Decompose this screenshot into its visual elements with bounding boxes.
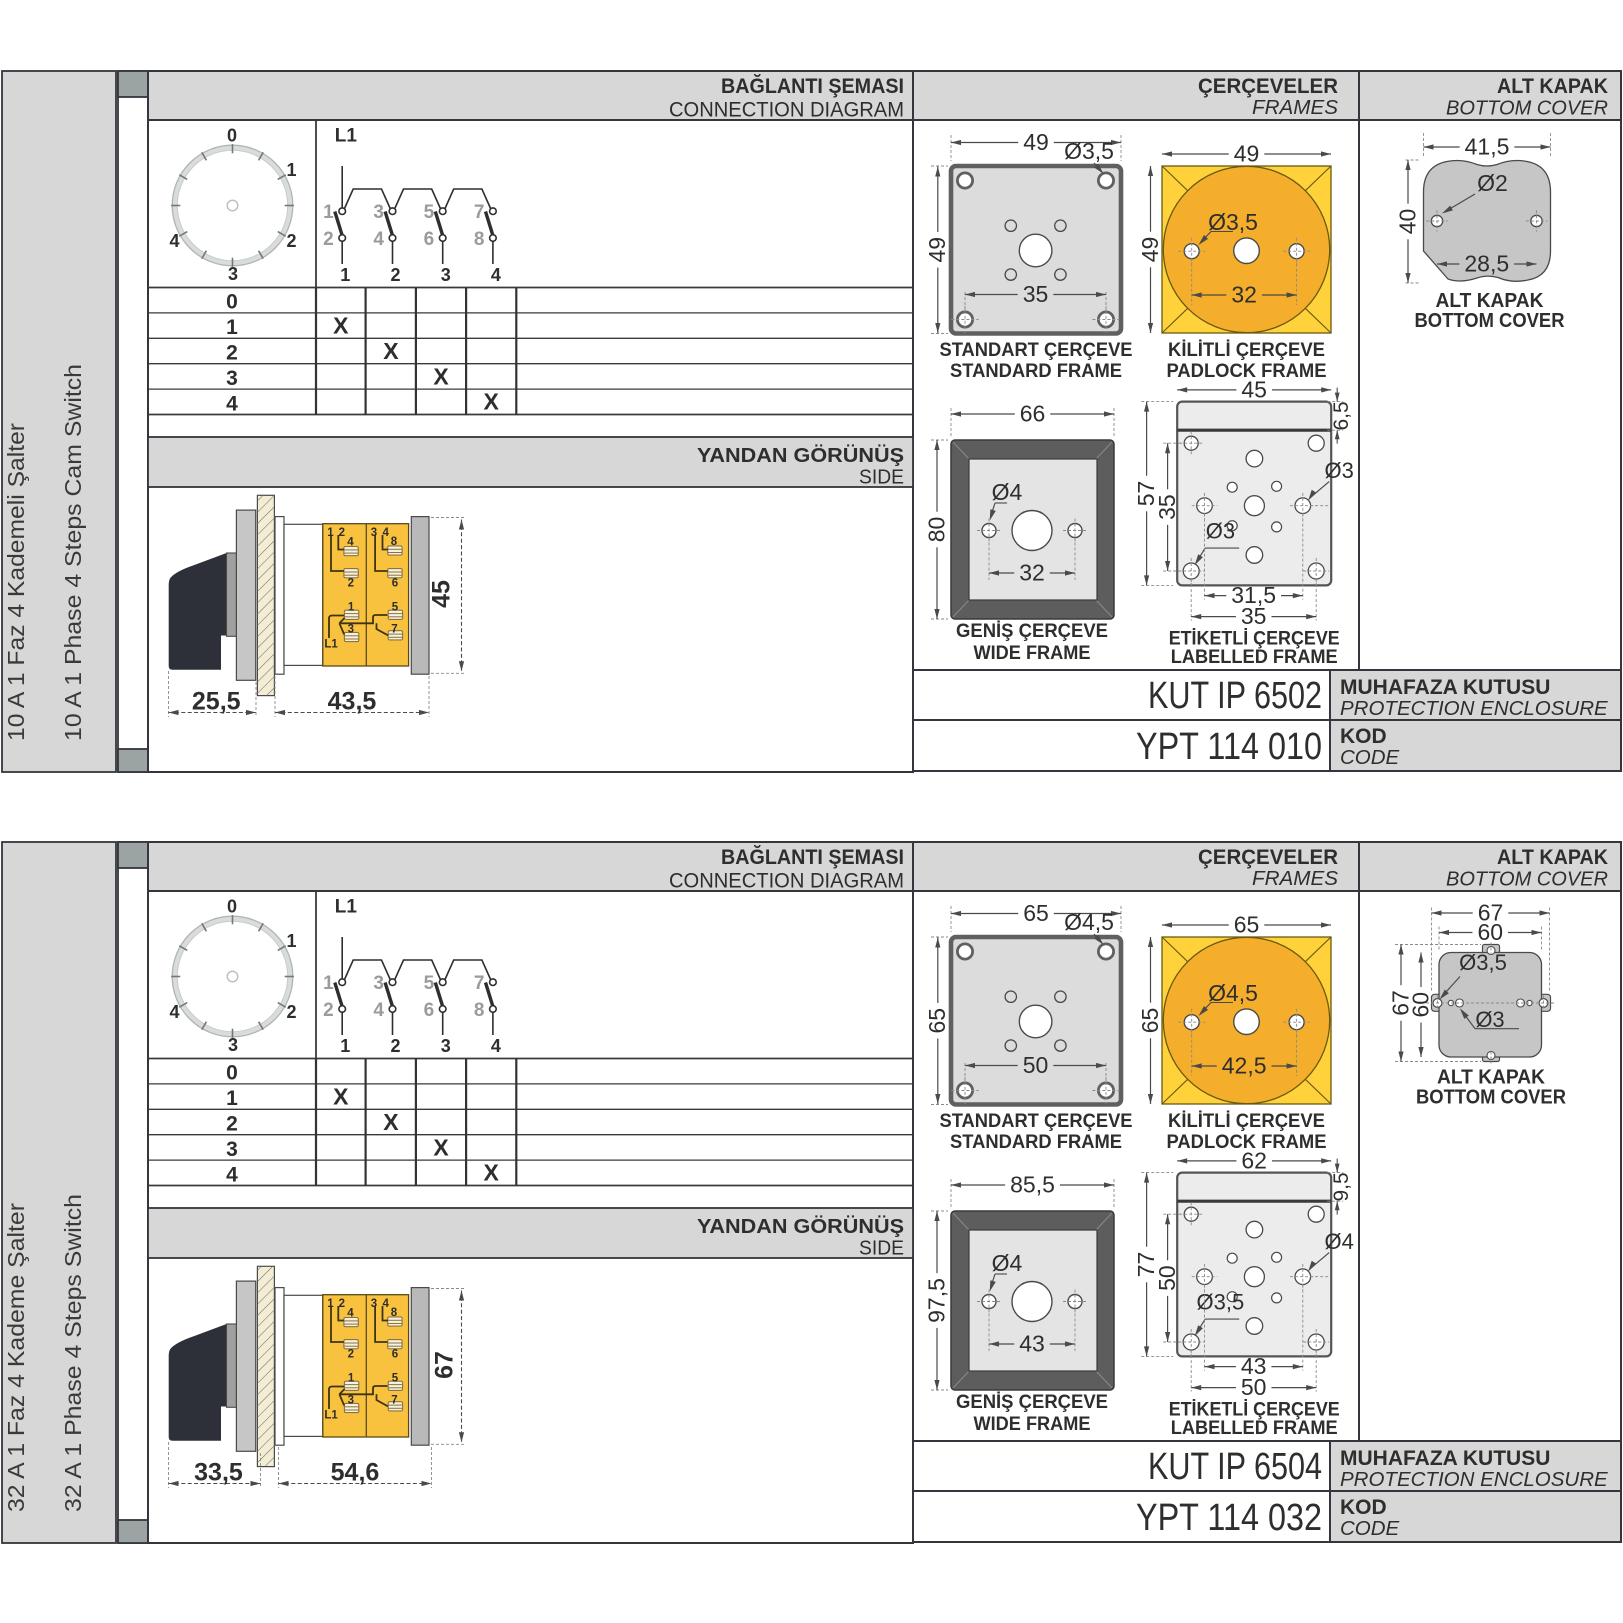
svg-text:1: 1 xyxy=(286,160,296,180)
svg-text:40: 40 xyxy=(1394,209,1420,235)
svg-text:X: X xyxy=(333,313,349,339)
svg-text:PROTECTION ENCLOSURE: PROTECTION ENCLOSURE xyxy=(1340,1468,1608,1491)
svg-text:60: 60 xyxy=(1477,919,1503,945)
svg-text:9,5: 9,5 xyxy=(1330,1172,1353,1201)
svg-text:3: 3 xyxy=(226,367,238,390)
svg-text:8: 8 xyxy=(474,1000,485,1021)
svg-text:YPT 114 010: YPT 114 010 xyxy=(1136,726,1322,768)
svg-text:LABELLED FRAME: LABELLED FRAME xyxy=(1171,1417,1338,1439)
svg-text:1: 1 xyxy=(348,1373,355,1385)
svg-text:2: 2 xyxy=(390,1036,400,1056)
svg-text:67: 67 xyxy=(431,1351,459,1379)
svg-text:STANDARD FRAME: STANDARD FRAME xyxy=(950,1131,1122,1153)
svg-text:2: 2 xyxy=(323,229,334,250)
svg-text:50: 50 xyxy=(1154,1265,1180,1291)
svg-text:GENİŞ ÇERÇEVE: GENİŞ ÇERÇEVE xyxy=(956,1390,1108,1413)
svg-text:4: 4 xyxy=(373,1000,384,1021)
svg-text:1: 1 xyxy=(348,602,355,614)
svg-text:X: X xyxy=(383,338,399,364)
svg-text:Ø3,5: Ø3,5 xyxy=(1197,1290,1245,1315)
svg-text:50: 50 xyxy=(1023,1052,1049,1078)
svg-text:CONNECTION DIAGRAM: CONNECTION DIAGRAM xyxy=(669,98,904,122)
svg-text:YANDAN GÖRÜNÜŞ: YANDAN GÖRÜNÜŞ xyxy=(697,444,904,467)
svg-text:BAĞLANTI ŞEMASI: BAĞLANTI ŞEMASI xyxy=(721,845,904,869)
svg-text:32 A 1 Faz 4 Kademe Şalter: 32 A 1 Faz 4 Kademe Şalter xyxy=(3,1203,29,1512)
svg-text:8: 8 xyxy=(474,229,485,250)
svg-text:PROTECTION ENCLOSURE: PROTECTION ENCLOSURE xyxy=(1340,697,1608,720)
svg-text:KOD: KOD xyxy=(1340,725,1387,748)
svg-text:KUT IP 6504: KUT IP 6504 xyxy=(1148,1446,1322,1488)
svg-text:1: 1 xyxy=(340,265,350,285)
svg-text:ALT KAPAK: ALT KAPAK xyxy=(1497,846,1608,869)
svg-text:L1: L1 xyxy=(324,1410,338,1422)
svg-text:5: 5 xyxy=(424,202,435,223)
svg-text:KİLİTLİ ÇERÇEVE: KİLİTLİ ÇERÇEVE xyxy=(1168,338,1325,361)
svg-text:1: 1 xyxy=(323,202,334,223)
svg-text:42,5: 42,5 xyxy=(1222,1052,1267,1078)
svg-text:32: 32 xyxy=(1231,281,1257,307)
svg-text:STANDART ÇERÇEVE: STANDART ÇERÇEVE xyxy=(940,339,1133,361)
svg-text:32: 32 xyxy=(1019,559,1045,585)
svg-text:L1: L1 xyxy=(335,897,358,918)
svg-text:BOTTOM COVER: BOTTOM COVER xyxy=(1446,97,1608,120)
svg-text:35: 35 xyxy=(1154,494,1180,520)
svg-text:65: 65 xyxy=(924,1008,950,1034)
svg-text:YANDAN GÖRÜNÜŞ: YANDAN GÖRÜNÜŞ xyxy=(697,1215,904,1238)
svg-text:2: 2 xyxy=(339,1298,345,1310)
svg-text:L1: L1 xyxy=(324,639,338,651)
svg-text:2: 2 xyxy=(286,1002,296,1022)
svg-text:6: 6 xyxy=(424,1000,435,1021)
svg-text:ALT KAPAK: ALT KAPAK xyxy=(1497,75,1608,98)
svg-text:Ø3,5: Ø3,5 xyxy=(1064,138,1114,164)
svg-text:6,5: 6,5 xyxy=(1330,401,1353,430)
svg-text:4: 4 xyxy=(382,1298,389,1310)
svg-text:X: X xyxy=(333,1084,349,1110)
svg-text:1: 1 xyxy=(340,1036,350,1056)
svg-text:3: 3 xyxy=(441,1036,451,1056)
svg-text:10 A 1 Phase 4 Steps Cam Switc: 10 A 1 Phase 4 Steps Cam Switch xyxy=(60,364,86,741)
svg-text:43,5: 43,5 xyxy=(328,688,377,716)
svg-text:Ø4: Ø4 xyxy=(992,479,1023,505)
svg-text:3: 3 xyxy=(371,527,377,539)
svg-text:Ø4: Ø4 xyxy=(992,1250,1023,1276)
svg-text:STANDART ÇERÇEVE: STANDART ÇERÇEVE xyxy=(940,1110,1133,1132)
svg-text:SIDE: SIDE xyxy=(859,1237,904,1260)
svg-text:2: 2 xyxy=(348,1349,354,1361)
svg-text:FRAMES: FRAMES xyxy=(1252,96,1338,119)
svg-text:8: 8 xyxy=(391,536,398,548)
svg-text:2: 2 xyxy=(390,265,400,285)
svg-text:CODE: CODE xyxy=(1340,746,1400,769)
svg-text:35: 35 xyxy=(1023,281,1049,307)
svg-text:4: 4 xyxy=(226,392,238,415)
svg-text:28,5: 28,5 xyxy=(1464,250,1509,276)
svg-text:49: 49 xyxy=(1234,140,1260,166)
svg-text:5: 5 xyxy=(424,973,435,994)
svg-text:0: 0 xyxy=(226,1062,238,1085)
svg-text:54,6: 54,6 xyxy=(331,1459,380,1487)
svg-text:CODE: CODE xyxy=(1340,1517,1400,1540)
svg-text:49: 49 xyxy=(1137,237,1163,263)
svg-text:BAĞLANTI ŞEMASI: BAĞLANTI ŞEMASI xyxy=(721,74,904,98)
svg-text:1: 1 xyxy=(327,527,334,539)
svg-text:10 A 1 Faz 4 Kademeli Şalter: 10 A 1 Faz 4 Kademeli Şalter xyxy=(3,423,29,741)
svg-text:WIDE FRAME: WIDE FRAME xyxy=(974,1413,1091,1435)
svg-text:65: 65 xyxy=(1234,911,1260,937)
svg-text:66: 66 xyxy=(1020,400,1046,426)
svg-text:5: 5 xyxy=(392,602,399,614)
svg-text:0: 0 xyxy=(226,291,238,314)
svg-text:0: 0 xyxy=(227,126,237,146)
svg-text:3: 3 xyxy=(371,1298,377,1310)
svg-text:Ø3,5: Ø3,5 xyxy=(1459,950,1507,975)
svg-text:1: 1 xyxy=(226,1087,238,1110)
svg-text:45: 45 xyxy=(1241,376,1267,402)
svg-text:L1: L1 xyxy=(335,126,358,147)
svg-text:X: X xyxy=(433,363,449,389)
svg-text:1: 1 xyxy=(226,316,238,339)
svg-text:49: 49 xyxy=(1023,129,1049,155)
svg-text:4: 4 xyxy=(169,231,179,251)
svg-text:BOTTOM COVER: BOTTOM COVER xyxy=(1446,868,1608,891)
svg-text:X: X xyxy=(433,1134,449,1160)
svg-text:KİLİTLİ ÇERÇEVE: KİLİTLİ ÇERÇEVE xyxy=(1168,1109,1325,1132)
svg-text:SIDE: SIDE xyxy=(859,466,904,489)
svg-text:3: 3 xyxy=(348,624,354,636)
svg-text:X: X xyxy=(484,389,500,415)
svg-text:X: X xyxy=(484,1160,500,1186)
svg-text:FRAMES: FRAMES xyxy=(1252,867,1338,890)
svg-text:2: 2 xyxy=(323,1000,334,1021)
svg-text:1: 1 xyxy=(323,973,334,994)
svg-text:65: 65 xyxy=(1023,900,1049,926)
svg-text:YPT 114 032: YPT 114 032 xyxy=(1136,1497,1322,1539)
svg-text:2: 2 xyxy=(226,342,238,365)
svg-text:43: 43 xyxy=(1019,1330,1045,1356)
svg-text:2: 2 xyxy=(286,231,296,251)
svg-text:85,5: 85,5 xyxy=(1010,1171,1055,1197)
svg-text:3: 3 xyxy=(441,265,451,285)
svg-text:Ø3: Ø3 xyxy=(1206,519,1235,544)
svg-text:6: 6 xyxy=(392,577,398,589)
svg-text:ÇERÇEVELER: ÇERÇEVELER xyxy=(1198,846,1338,869)
svg-text:3: 3 xyxy=(228,264,238,284)
svg-text:49: 49 xyxy=(924,237,950,263)
svg-text:2: 2 xyxy=(348,578,354,590)
svg-text:GENİŞ ÇERÇEVE: GENİŞ ÇERÇEVE xyxy=(956,619,1108,642)
svg-text:Ø3: Ø3 xyxy=(1325,458,1354,483)
svg-text:7: 7 xyxy=(474,973,485,994)
svg-text:5: 5 xyxy=(392,1373,399,1385)
svg-text:4: 4 xyxy=(226,1163,238,1186)
svg-text:3: 3 xyxy=(228,1035,238,1055)
svg-text:33,5: 33,5 xyxy=(194,1459,243,1487)
svg-text:CONNECTION DIAGRAM: CONNECTION DIAGRAM xyxy=(669,869,904,893)
svg-text:35: 35 xyxy=(1241,603,1267,629)
svg-text:4: 4 xyxy=(347,537,354,549)
svg-text:4: 4 xyxy=(491,265,501,285)
svg-text:7: 7 xyxy=(474,202,485,223)
svg-text:8: 8 xyxy=(391,1307,398,1319)
svg-text:BOTTOM COVER: BOTTOM COVER xyxy=(1416,1086,1566,1109)
svg-text:X: X xyxy=(383,1109,399,1135)
svg-text:STANDARD FRAME: STANDARD FRAME xyxy=(950,360,1122,382)
svg-text:BOTTOM COVER: BOTTOM COVER xyxy=(1415,309,1565,332)
svg-text:Ø4: Ø4 xyxy=(1325,1229,1354,1254)
svg-text:25,5: 25,5 xyxy=(192,688,241,716)
svg-text:3: 3 xyxy=(226,1138,238,1161)
svg-text:60: 60 xyxy=(1407,992,1433,1018)
svg-text:3: 3 xyxy=(373,973,384,994)
svg-text:MUHAFAZA KUTUSU: MUHAFAZA KUTUSU xyxy=(1340,676,1550,699)
svg-text:3: 3 xyxy=(348,1395,354,1407)
svg-text:4: 4 xyxy=(373,229,384,250)
svg-text:KUT IP 6502: KUT IP 6502 xyxy=(1148,675,1322,717)
svg-text:2: 2 xyxy=(339,527,345,539)
svg-text:80: 80 xyxy=(923,517,949,543)
svg-text:KOD: KOD xyxy=(1340,1496,1387,1519)
svg-text:ÇERÇEVELER: ÇERÇEVELER xyxy=(1198,75,1338,98)
svg-text:0: 0 xyxy=(227,897,237,917)
svg-text:Ø2: Ø2 xyxy=(1477,170,1508,196)
svg-text:4: 4 xyxy=(382,527,389,539)
svg-text:4: 4 xyxy=(169,1002,179,1022)
svg-text:32 A 1 Phase 4 Steps Switch: 32 A 1 Phase 4 Steps Switch xyxy=(60,1194,86,1512)
svg-text:LABELLED FRAME: LABELLED FRAME xyxy=(1171,646,1338,668)
svg-text:50: 50 xyxy=(1241,1374,1267,1400)
svg-text:MUHAFAZA KUTUSU: MUHAFAZA KUTUSU xyxy=(1340,1447,1550,1470)
svg-text:2: 2 xyxy=(226,1113,238,1136)
svg-text:1: 1 xyxy=(327,1298,334,1310)
svg-text:45: 45 xyxy=(428,580,456,608)
svg-text:41,5: 41,5 xyxy=(1465,133,1510,159)
svg-text:97,5: 97,5 xyxy=(923,1278,949,1323)
svg-text:4: 4 xyxy=(347,1308,354,1320)
svg-text:4: 4 xyxy=(491,1036,501,1056)
svg-text:Ø4,5: Ø4,5 xyxy=(1064,909,1114,935)
svg-text:WIDE FRAME: WIDE FRAME xyxy=(974,642,1091,664)
svg-text:65: 65 xyxy=(1137,1008,1163,1034)
svg-text:62: 62 xyxy=(1241,1147,1267,1173)
svg-text:6: 6 xyxy=(424,229,435,250)
svg-text:7: 7 xyxy=(391,624,397,636)
svg-text:1: 1 xyxy=(286,931,296,951)
svg-text:6: 6 xyxy=(392,1348,398,1360)
svg-text:3: 3 xyxy=(373,202,384,223)
svg-text:7: 7 xyxy=(391,1395,397,1407)
